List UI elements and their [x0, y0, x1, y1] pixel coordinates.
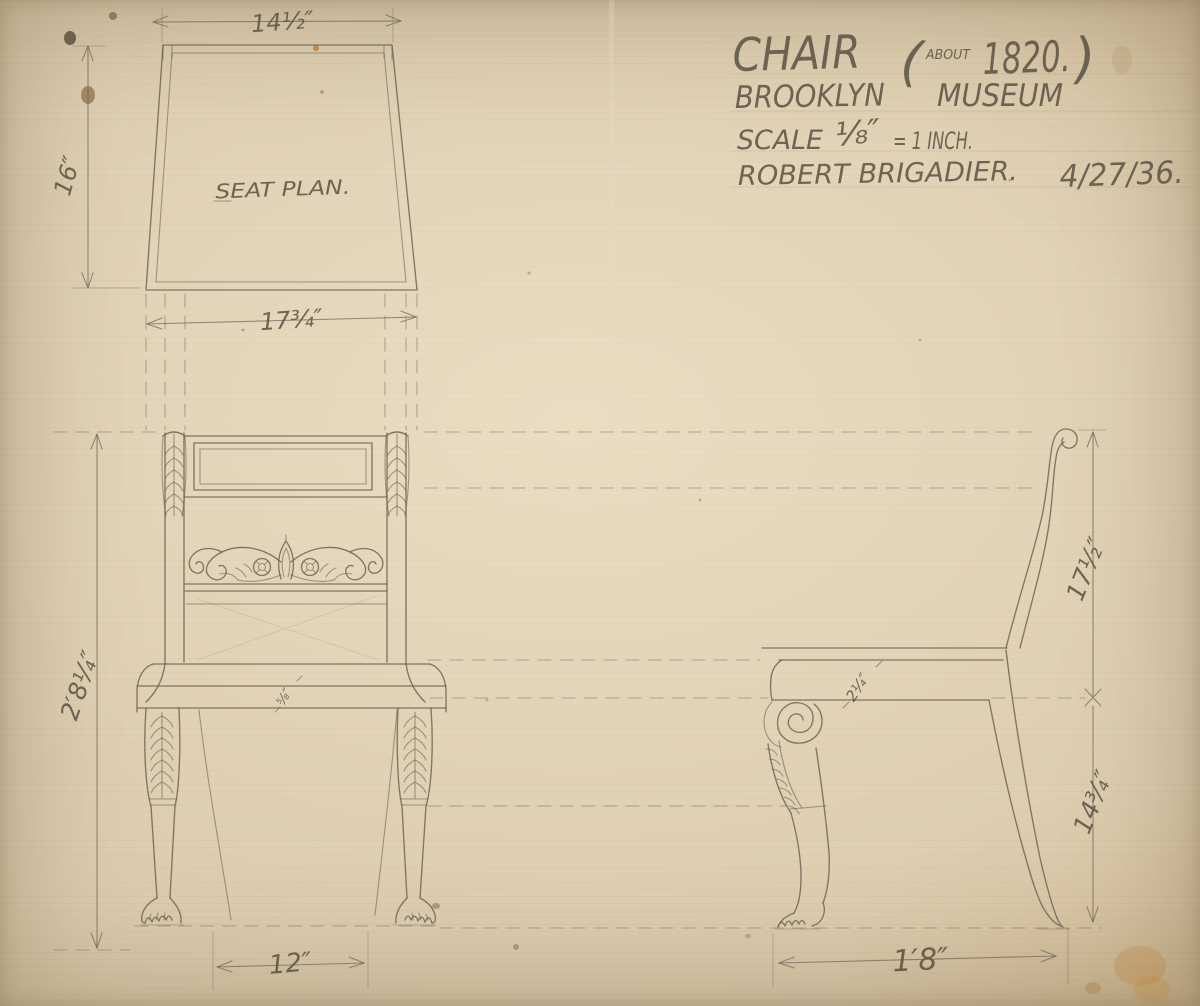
projection-lines	[424, 432, 1102, 928]
scale-fraction: ⅛″	[833, 111, 883, 154]
label-side-seat-rail: 2¼″	[842, 661, 882, 708]
seat-plan-label: SEAT PLAN.	[215, 175, 351, 204]
seat-plan-label-group: SEAT PLAN.	[214, 175, 351, 204]
scale-rest: = 1 INCH.	[893, 127, 973, 155]
artist-name: ROBERT BRIGADIER.	[738, 156, 1018, 192]
scale-word: SCALE	[737, 125, 823, 156]
measured-drawing: 14½″ 16″ 17¾″	[0, 0, 1200, 1006]
front-elevation-drawing	[135, 432, 446, 926]
dim-overall-height: 2′8¼″	[54, 432, 158, 950]
dim-back-height: 17½″	[1060, 430, 1112, 706]
dim-seat-height: 14¾″	[1067, 706, 1119, 922]
dim-label-back-height: 17½″	[1060, 532, 1112, 604]
dim-front-leg-spread: 12″	[213, 932, 368, 990]
title-object: CHAIR	[732, 25, 861, 82]
side-elevation-drawing	[762, 429, 1077, 929]
title-circa: ABOUT	[925, 47, 972, 63]
title-paren-open: (	[898, 29, 928, 94]
paper-sheet: 14½″ 16″ 17¾″	[0, 0, 1200, 1006]
dim-label-plan-back-width: 17¾″	[259, 304, 324, 336]
title-paren-close: )	[1069, 26, 1098, 91]
dim-seat-plan-depth: 16″	[48, 46, 140, 288]
dim-label-front-seat-rail: ⅝″	[274, 686, 296, 709]
dim-label-plan-front-width: 14½″	[250, 6, 315, 38]
dim-label-seat-height: 14¾″	[1067, 765, 1119, 837]
museum-word2: MUSEUM	[937, 78, 1063, 114]
museum-word1: BROOKLYN	[735, 77, 886, 116]
dim-label-overall-depth: 1′8″	[892, 942, 951, 980]
dim-seat-plan-back-width: 17¾″	[147, 304, 416, 336]
dim-label-front-leg-spread: 12″	[268, 947, 314, 981]
drawing-date: 4/27/36.	[1059, 155, 1184, 195]
dim-label-plan-depth: 16″	[48, 153, 86, 199]
label-front-seat-rail: ⅝″	[274, 676, 302, 712]
dim-label-overall-height: 2′8¼″	[55, 646, 106, 723]
dim-overall-depth: 1′8″	[773, 928, 1068, 986]
seat-plan-drawing	[146, 45, 417, 430]
dim-seat-plan-front-width: 14½″	[153, 6, 401, 42]
